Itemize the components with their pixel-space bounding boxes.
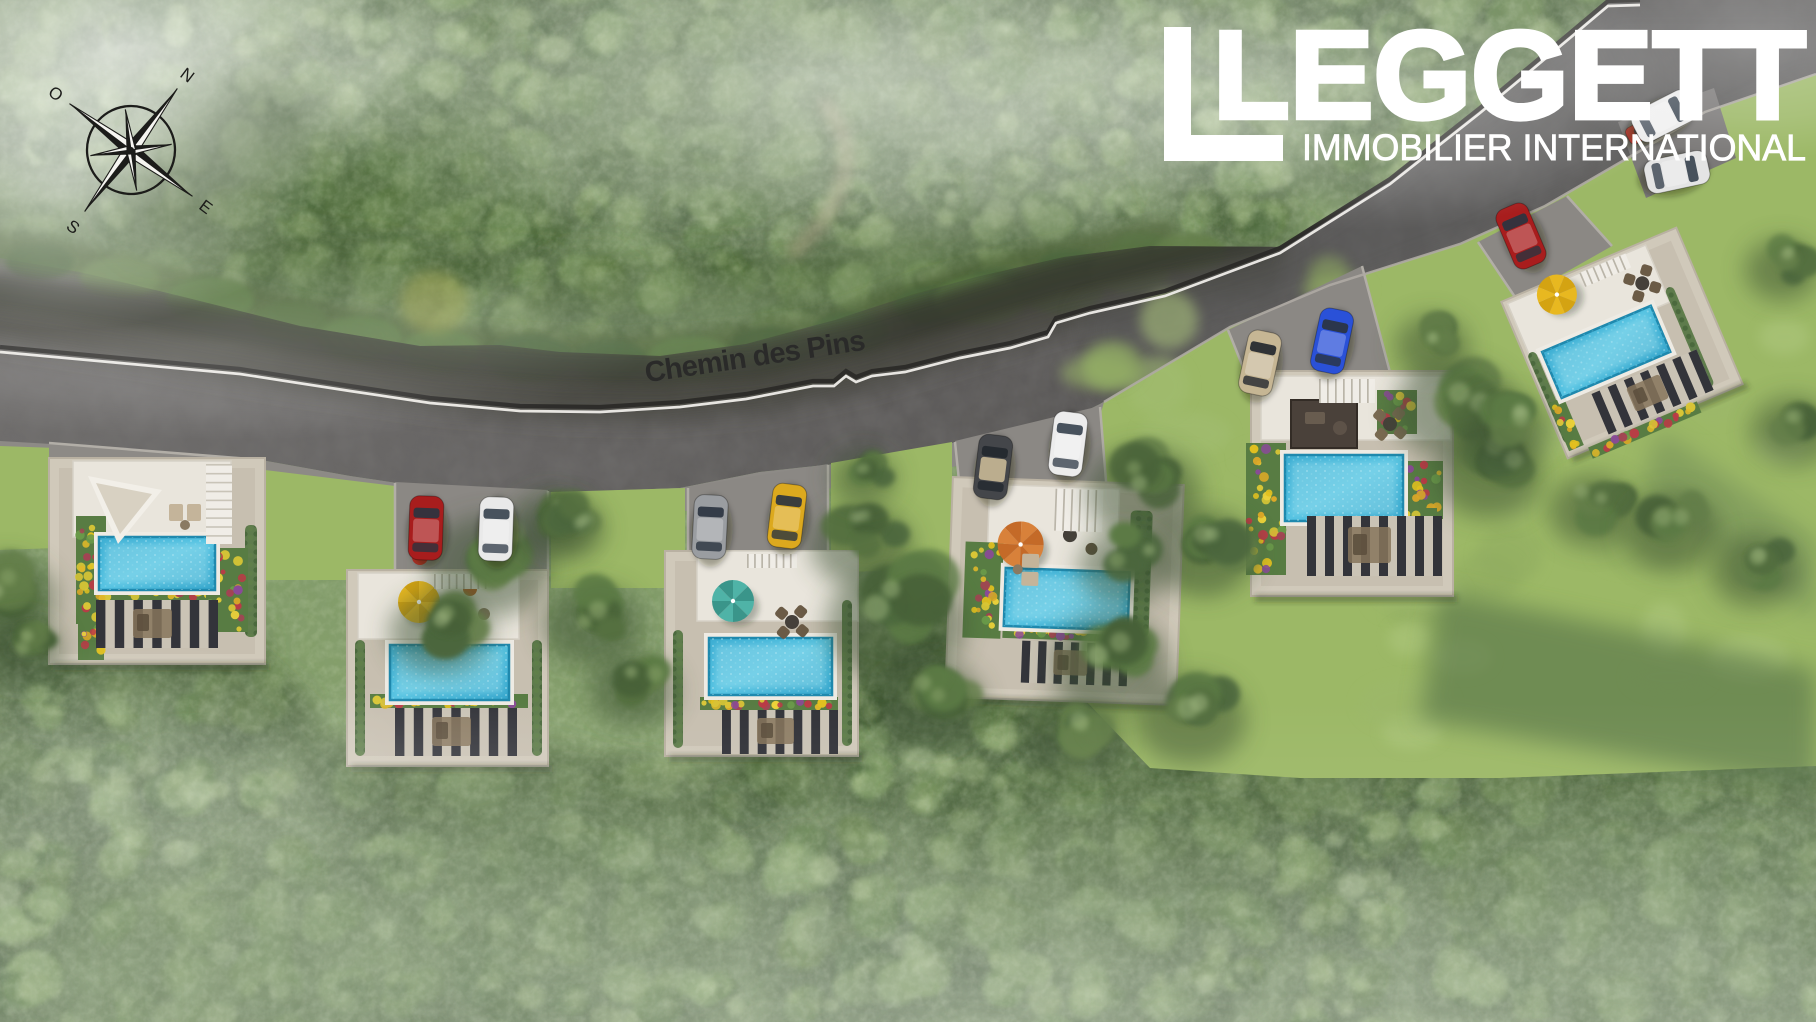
svg-text:IMMOBILIER INTERNATIONAL: IMMOBILIER INTERNATIONAL (1302, 127, 1806, 168)
svg-text:LEGGETT: LEGGETT (1213, 6, 1806, 145)
